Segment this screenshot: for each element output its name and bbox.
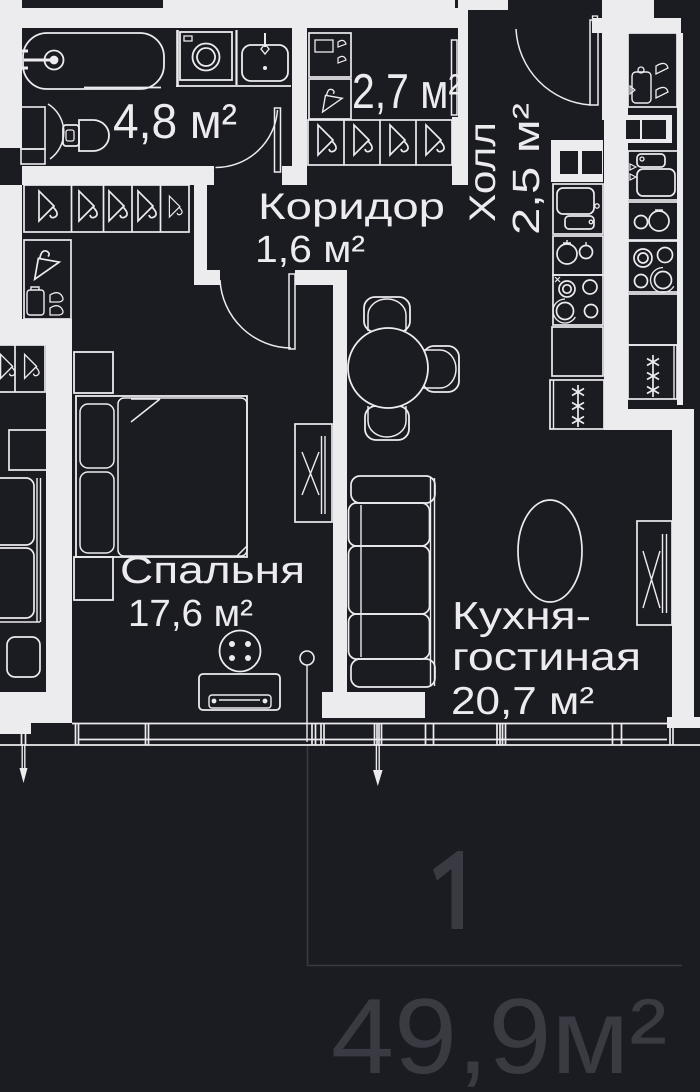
svg-text:Коридор: Коридор <box>258 186 445 227</box>
svg-text:4,8 м²: 4,8 м² <box>113 95 237 149</box>
svg-text:Холл: Холл <box>462 122 503 222</box>
svg-text:17,6 м²: 17,6 м² <box>128 593 253 635</box>
svg-text:2,5 м²: 2,5 м² <box>506 103 548 235</box>
svg-text:1,6 м²: 1,6 м² <box>255 229 365 271</box>
svg-text:Кухня-: Кухня- <box>452 595 591 638</box>
svg-text:49,9м²: 49,9м² <box>331 976 667 1092</box>
svg-text:Спальня: Спальня <box>120 550 305 592</box>
svg-text:2,7 м²: 2,7 м² <box>352 65 462 119</box>
svg-text:гостиная: гостиная <box>452 636 641 679</box>
svg-text:20,7 м²: 20,7 м² <box>451 680 594 723</box>
